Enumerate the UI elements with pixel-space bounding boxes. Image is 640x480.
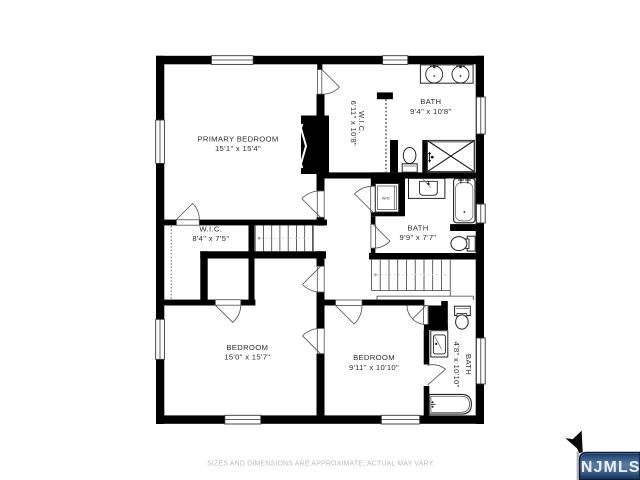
svg-text:NJMLS: NJMLS <box>581 459 640 476</box>
svg-text:SIZES AND DIMENSIONS ARE APPRO: SIZES AND DIMENSIONS ARE APPROXIMATE, AC… <box>207 460 435 467</box>
svg-text:BEDROOM: BEDROOM <box>226 343 268 352</box>
svg-text:8'4" x 7'5": 8'4" x 7'5" <box>192 234 229 243</box>
svg-text:PRIMARY BEDROOM: PRIMARY BEDROOM <box>197 135 278 144</box>
svg-text:BATH: BATH <box>464 354 473 375</box>
svg-text:15'0" x 15'7": 15'0" x 15'7" <box>224 352 270 361</box>
svg-text:9'11" x 10'10": 9'11" x 10'10" <box>349 363 399 372</box>
svg-text:4'8" x 10'10": 4'8" x 10'10" <box>452 342 461 388</box>
svg-text:9'4" x 10'8": 9'4" x 10'8" <box>410 107 452 116</box>
svg-text:15'1" x 15'4": 15'1" x 15'4" <box>215 144 261 153</box>
svg-text:BEDROOM: BEDROOM <box>353 353 395 362</box>
svg-text:W/D: W/D <box>382 196 390 200</box>
svg-text:W.I.C.: W.I.C. <box>199 225 222 234</box>
svg-text:BATH: BATH <box>407 224 428 233</box>
svg-text:BATH: BATH <box>420 97 441 106</box>
svg-text:6'11" x 10'8": 6'11" x 10'8" <box>349 101 358 147</box>
svg-text:9'9" x 7'7": 9'9" x 7'7" <box>400 233 437 242</box>
